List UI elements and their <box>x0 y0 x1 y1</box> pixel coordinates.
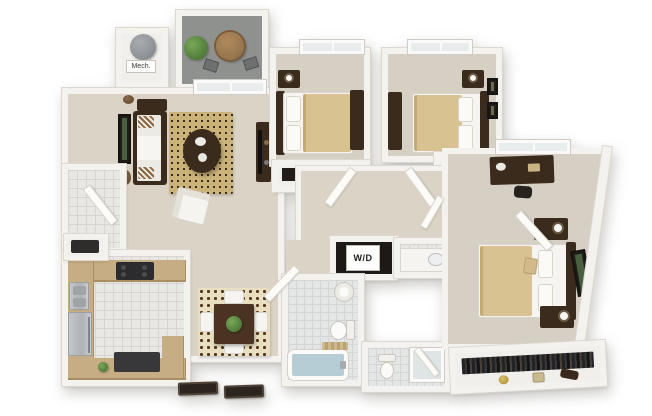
burner <box>121 265 126 270</box>
apartment-unit: Mech. <box>0 0 652 416</box>
bed1-blanket <box>303 94 351 152</box>
bedroom-1 <box>270 48 370 166</box>
shower-glass-door <box>415 348 439 376</box>
bistro-table <box>216 32 244 60</box>
striped-pillow <box>138 116 154 128</box>
patio-chair <box>243 56 260 71</box>
hat-box <box>498 375 508 385</box>
tv-console <box>256 122 271 182</box>
toilet1-bowl <box>330 321 347 340</box>
microwave-nook <box>64 234 108 260</box>
bedroom2-wall-frame <box>487 102 498 119</box>
wd-label-text: W/D <box>354 253 373 263</box>
table-decor <box>195 137 206 146</box>
slider-mullion <box>230 83 232 91</box>
dishwasher <box>114 352 160 372</box>
oval-wall-decor <box>123 95 134 104</box>
refrigerator <box>68 312 92 356</box>
bed1-pillow <box>286 96 301 122</box>
bed2-nightstand <box>462 70 484 88</box>
fridge-handle <box>88 317 90 353</box>
kitchen <box>62 250 190 386</box>
bedroom2-dresser <box>388 92 402 150</box>
bedroom2-wall-frame <box>487 78 498 95</box>
bed2-pillow <box>458 125 473 150</box>
console-decor <box>264 160 269 165</box>
striped-pillow <box>138 167 154 179</box>
bed2-blanket <box>414 95 462 151</box>
kitchen-sink <box>69 282 89 310</box>
storage-basket <box>532 372 545 383</box>
bedroom1-window <box>300 40 364 54</box>
toilet2-tank <box>378 354 396 362</box>
bedroom1-dresser <box>350 90 364 150</box>
door-mat <box>224 384 264 398</box>
entry-door-open <box>84 186 117 225</box>
master-closet <box>449 340 607 394</box>
burner <box>142 272 147 277</box>
centerpiece-plant <box>226 316 242 332</box>
master-pillow <box>538 250 553 278</box>
glass-shower <box>410 348 444 382</box>
bed2-lamp <box>468 73 478 83</box>
patio-chair <box>203 58 220 73</box>
master-lamp <box>558 310 570 322</box>
window-mullion <box>440 43 442 51</box>
dining-chair <box>200 312 214 332</box>
potted-plant <box>184 36 208 60</box>
bed1-nightstand <box>278 70 300 88</box>
range-stove <box>116 262 154 280</box>
mechanical-closet: Mech. <box>116 28 168 88</box>
bathroom-2 <box>362 342 450 392</box>
bathtub <box>288 350 348 380</box>
sofa <box>133 111 167 185</box>
microwave <box>71 240 99 253</box>
master-bed-blanket <box>480 246 532 316</box>
desk-decor <box>528 163 540 171</box>
master-lamp <box>552 222 564 234</box>
bathroom-1 <box>282 274 364 386</box>
floor-plan-render: Mech. <box>0 0 652 416</box>
kitchen-counter-end <box>162 336 184 380</box>
balcony-sliding-door <box>194 80 266 94</box>
frame-canvas <box>491 82 494 91</box>
burner <box>121 272 126 277</box>
wall-art <box>118 114 131 164</box>
mech-label: Mech. <box>126 60 156 73</box>
console-decor <box>264 140 269 145</box>
desk <box>490 155 555 185</box>
table-decor <box>198 153 207 162</box>
master-nightstand <box>540 306 574 328</box>
mech-label-text: Mech. <box>131 63 150 70</box>
dining-chair <box>224 290 244 304</box>
bed1-lamp <box>284 73 294 83</box>
bedroom2-window <box>408 40 472 54</box>
burner <box>142 265 147 270</box>
bed1-pillow <box>286 125 301 151</box>
bed2-pillow <box>458 97 473 122</box>
master-window <box>496 140 570 154</box>
desk-chair <box>514 185 533 198</box>
door-mat <box>178 381 218 395</box>
tv-screen <box>258 130 262 174</box>
frame-canvas <box>491 106 494 115</box>
console-table <box>137 99 167 111</box>
window-mullion <box>533 143 535 151</box>
sink-basin <box>73 286 86 295</box>
water-heater <box>130 34 156 60</box>
master-accent-cushion <box>523 257 538 275</box>
dining-chair <box>254 312 268 332</box>
balcony <box>176 10 268 90</box>
bedroom-2 <box>382 48 502 162</box>
tub-faucet <box>340 361 346 369</box>
bed2-headboard <box>480 91 489 155</box>
desk-decor <box>496 163 506 171</box>
window-mullion <box>332 43 334 51</box>
vanity-sink <box>428 253 444 266</box>
coffee-table <box>183 129 221 173</box>
toilet2-bowl <box>380 362 394 379</box>
pedestal-sink <box>334 282 354 302</box>
bath-mat <box>322 342 348 350</box>
armchair <box>171 186 212 225</box>
wall-art-canvas <box>122 118 127 160</box>
sink-basin <box>73 298 86 307</box>
clutch-box <box>560 368 579 380</box>
toilet1-tank <box>346 320 355 340</box>
small-plant <box>98 362 108 372</box>
washer-dryer: W/D <box>346 245 380 271</box>
